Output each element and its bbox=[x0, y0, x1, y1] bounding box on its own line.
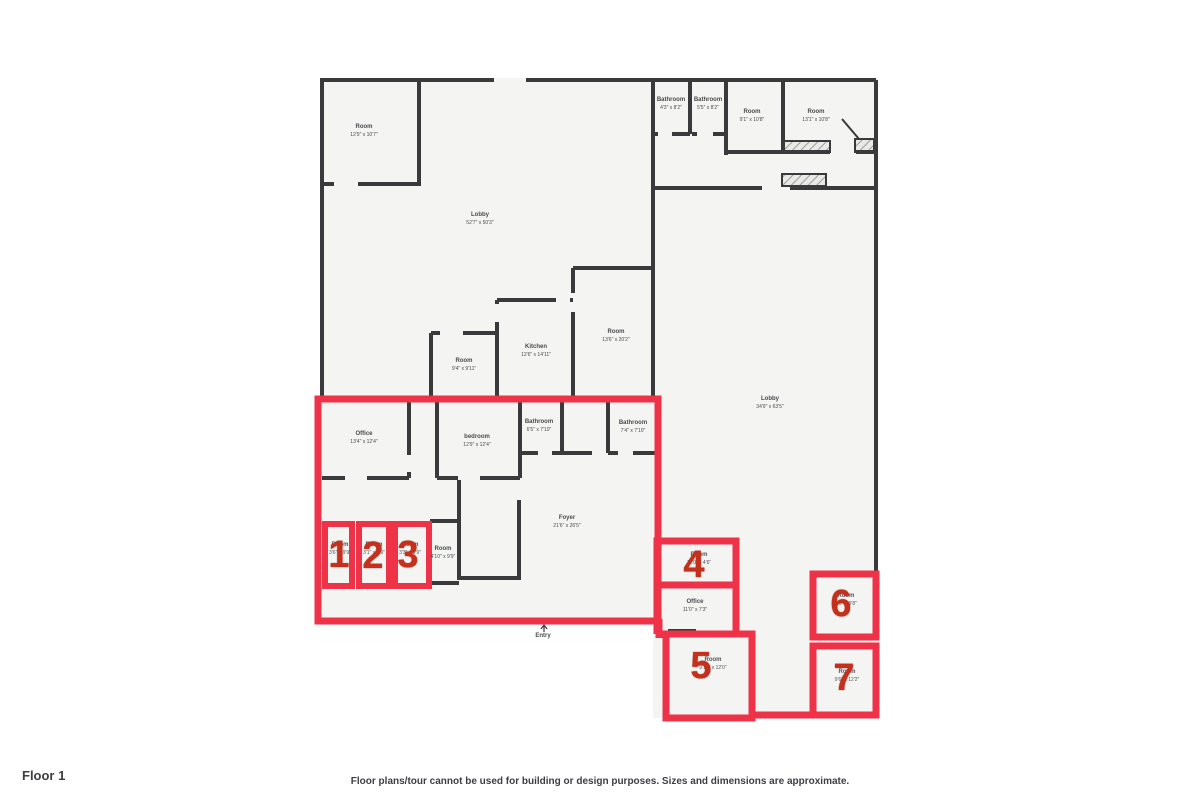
room-label-mid-room: Room 9'4" x 9'11" bbox=[452, 357, 476, 373]
zone-4-number[interactable]: 4 bbox=[683, 546, 704, 584]
room-label-lobby-left: Lobby 52'7" x 50'3" bbox=[466, 211, 493, 227]
room-label-top-left: Room 12'9" x 10'7" bbox=[350, 123, 377, 139]
room-label-small-room: Room 4'10" x 9'9" bbox=[431, 545, 456, 561]
entry-arrow-icon bbox=[541, 625, 547, 632]
zone-2-number[interactable]: 2 bbox=[362, 537, 383, 575]
room-label-mid-room-b: Room 13'6" x 20'2" bbox=[602, 328, 629, 344]
room-label-bathroom-a: Bathroom 4'3" x 8'2" bbox=[657, 96, 685, 112]
room-label-foyer: Foyer 21'6" x 26'5" bbox=[553, 514, 580, 530]
floorplan-drawing bbox=[0, 0, 1200, 800]
room-label-lobby-right: Lobby 34'9" x 63'5" bbox=[756, 395, 783, 411]
room-label-top-a: Room 9'1" x 10'8" bbox=[740, 108, 765, 124]
room-label-bathroom-c: Bathroom 6'5" x 7'10" bbox=[525, 418, 553, 434]
room-label-top-b: Room 13'1" x 10'8" bbox=[802, 108, 829, 124]
room-label-office-a: Office 13'4" x 12'4" bbox=[350, 430, 377, 446]
room-label-office-b: Office 11'0" x 7'3" bbox=[683, 598, 707, 614]
zone-1-number[interactable]: 1 bbox=[328, 536, 349, 574]
floorplan-canvas: Room 12'9" x 10'7" Lobby 52'7" x 50'3" B… bbox=[0, 0, 1200, 800]
disclaimer-text: Floor plans/tour cannot be used for buil… bbox=[0, 776, 1200, 787]
room-label-kitchen: Kitchen 12'6" x 14'11" bbox=[521, 343, 551, 359]
entry-label: Entry bbox=[535, 633, 550, 639]
zone-7-number[interactable]: 7 bbox=[833, 659, 854, 697]
zone-6-number[interactable]: 6 bbox=[830, 585, 851, 623]
room-label-bathroom-d: Bathroom 7'4" x 7'10" bbox=[619, 419, 647, 435]
room-label-bedroom: bedroom 12'9" x 12'4" bbox=[463, 433, 490, 449]
room-label-bathroom-b: Bathroom 5'5" x 8'2" bbox=[694, 96, 722, 112]
zone-3-number[interactable]: 3 bbox=[397, 536, 418, 574]
zone-5-number[interactable]: 5 bbox=[690, 647, 711, 685]
